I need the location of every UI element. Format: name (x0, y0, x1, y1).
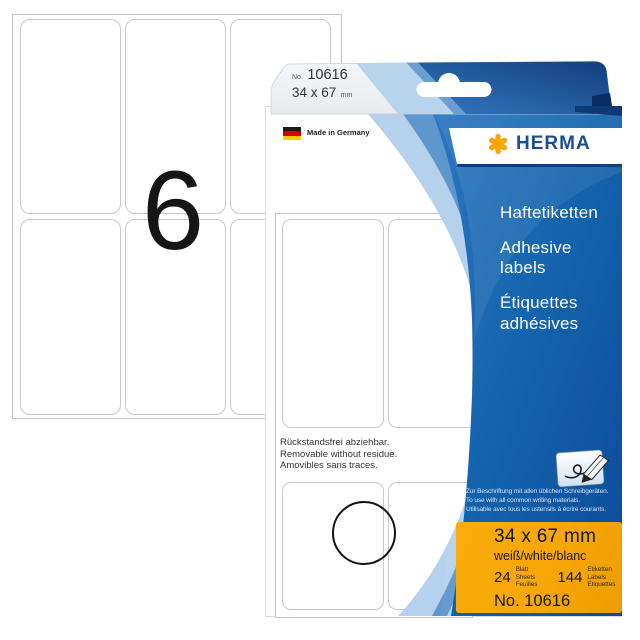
title-en: Adhesive labels (500, 238, 620, 278)
tab-size: 34 x 67 mm (292, 84, 352, 102)
euroslot-hang-hole (417, 73, 492, 97)
made-in-label: Made in Germany (307, 128, 370, 137)
flag-stripe-gold (283, 136, 301, 140)
usage-note-en: To use with all common writing materials… (466, 496, 608, 505)
usage-note-fr: Utilisable avec tous les ustensils à écr… (466, 505, 608, 514)
labels-count: 144 (557, 569, 582, 586)
spec-box: 34 x 67 mm weiß/white/blanc 24 Blatt She… (456, 522, 622, 613)
removable-note-fr: Amovibles sans traces. (280, 460, 397, 472)
tab-number: 10616 (307, 67, 347, 83)
brand-name: HERMA (516, 133, 591, 155)
germany-flag-icon (283, 127, 301, 140)
product-titles: Haftetiketten Adhesive labels Étiquettes… (500, 203, 620, 334)
sheet-label-count: 6 (118, 148, 228, 274)
tab-article-number: No. 10616 (292, 66, 348, 84)
title-fr: Étiquettes adhésives (500, 292, 618, 334)
removable-note: Rückstandsfrei abziehbar. Removable with… (280, 437, 397, 472)
label-cell (20, 19, 121, 214)
asterisk-icon (487, 133, 509, 155)
title-de: Haftetiketten (500, 203, 620, 223)
removable-note-de: Rückstandsfrei abziehbar. (280, 437, 397, 449)
label-cell (388, 219, 473, 428)
brand-logo: HERMA (487, 133, 591, 155)
tab-size-value: 34 x 67 (292, 85, 336, 100)
circle-mark (332, 501, 396, 565)
labels-words: Etiketten Labels Etiquettes (587, 566, 615, 589)
spec-article-number: No. 10616 (494, 592, 622, 611)
spec-color: weiß/white/blanc (494, 549, 622, 563)
spec-size: 34 x 67 mm (494, 526, 622, 548)
sheets-words: Blatt Sheets Feuilles (516, 566, 538, 589)
spec-counts: 24 Blatt Sheets Feuilles 144 Etiketten L… (494, 566, 622, 589)
usage-note-de: Zur Beschriftung mit allen üblichen Schr… (466, 487, 608, 496)
pencil-icon (553, 448, 619, 488)
usage-note: Zur Beschriftung mit allen üblichen Schr… (466, 487, 608, 514)
label-cell (20, 219, 121, 415)
removable-note-en: Removable without residue. (280, 449, 397, 461)
sheets-count: 24 (494, 569, 511, 586)
tab-no-prefix: No. (292, 74, 303, 81)
label-cell (282, 219, 384, 428)
tab-size-unit: mm (341, 92, 353, 99)
product-shot: 6 Rückstandsfrei abziehbar. Removable wi… (0, 0, 640, 640)
